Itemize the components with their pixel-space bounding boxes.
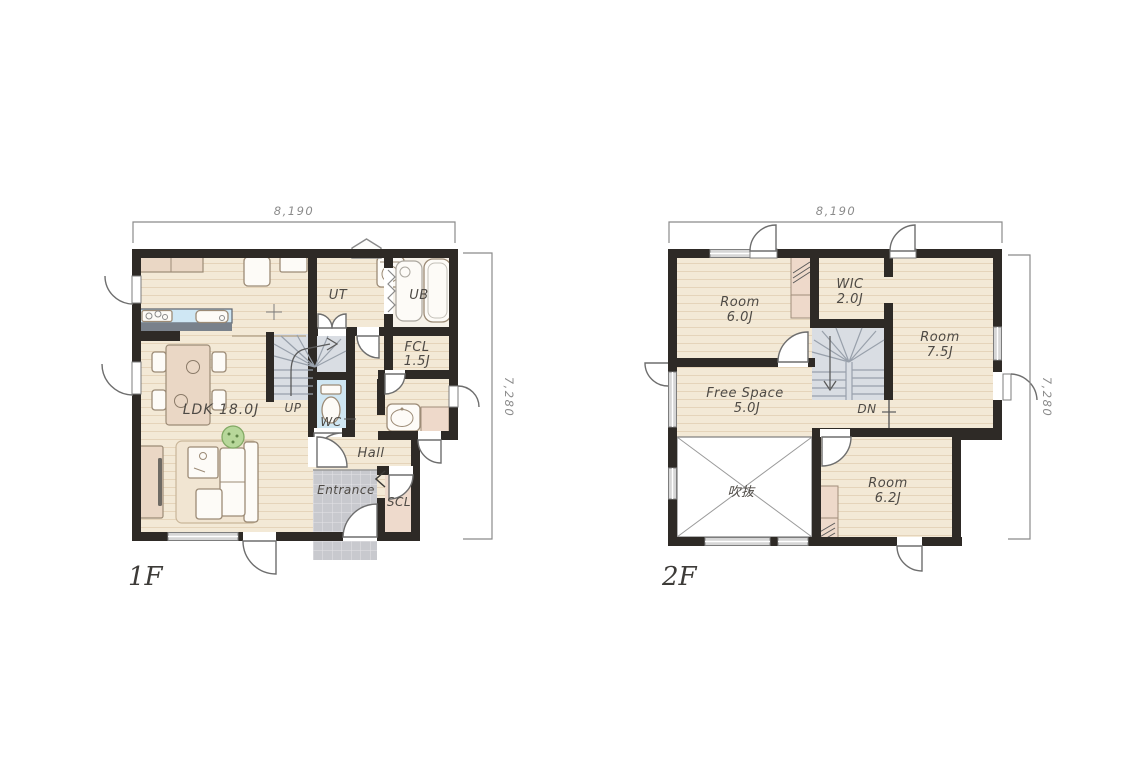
dim-width-2f: 8,190 <box>816 204 856 218</box>
refrigerator <box>244 257 270 286</box>
balcony-door-arc <box>1011 374 1037 400</box>
coffee-table <box>188 447 218 478</box>
casement-window <box>890 225 915 251</box>
free-space-size: 5.0J <box>734 401 761 416</box>
closet-room-6-0 <box>791 256 812 318</box>
kitchen-counter <box>139 309 232 331</box>
shelf <box>280 257 307 272</box>
casement-window-arc <box>105 276 133 304</box>
ut-label: UT <box>329 288 348 303</box>
casement-window <box>750 225 776 251</box>
floor-plan-1f: LDK 18.0J UT UB FCL 1.5J WC UP Hall Entr… <box>102 204 516 592</box>
room-6-2-terrace-door <box>897 546 922 571</box>
void-label: 吹抜 <box>727 485 756 500</box>
room-6-0-label: Room <box>720 295 760 310</box>
dim-height-1f: 7,280 <box>502 377 516 417</box>
fcl-label: FCL <box>404 340 429 355</box>
floor-label-1f: 1F <box>128 562 164 592</box>
room-6-2-size: 6.2J <box>875 491 902 506</box>
floor-plan-page: LDK 18.0J UT UB FCL 1.5J WC UP Hall Entr… <box>0 0 1142 776</box>
chair <box>212 352 226 372</box>
room-6-0-size: 6.0J <box>727 310 754 325</box>
hall-label: Hall <box>358 446 385 461</box>
plant <box>222 426 244 448</box>
casement-window-arc <box>102 364 133 395</box>
tv <box>158 458 162 506</box>
floor-label-2f: 2F <box>661 562 698 592</box>
free-space-label: Free Space <box>706 386 784 401</box>
dim-width-1f: 8,190 <box>274 204 314 218</box>
ub-label: UB <box>409 288 428 303</box>
washroom-cabinet <box>421 407 449 432</box>
terrace-door <box>243 541 276 574</box>
fcl-size-label: 1.5J <box>404 354 431 369</box>
dim-height-2f: 7,280 <box>1040 377 1054 417</box>
room-7-5-size: 7.5J <box>927 345 954 360</box>
sofa-chaise <box>196 489 222 519</box>
ldk-label: LDK 18.0J <box>183 402 260 418</box>
scl-label: SCL <box>387 495 411 509</box>
chair <box>152 390 166 410</box>
porch-tile <box>313 541 377 560</box>
washbasin <box>387 404 420 431</box>
chair <box>152 352 166 372</box>
sofa-back <box>244 442 258 522</box>
staircase-floor-2f <box>812 327 884 400</box>
wic-size: 2.0J <box>837 292 864 307</box>
casement-window-arc <box>645 363 668 386</box>
entrance-label: Entrance <box>317 483 375 497</box>
floor-plan-canvas: LDK 18.0J UT UB FCL 1.5J WC UP Hall Entr… <box>0 0 1142 776</box>
room-6-2-label: Room <box>868 476 908 491</box>
wic-label: WIC <box>836 277 864 292</box>
room-7-5-label: Room <box>920 330 960 345</box>
dn-label: DN <box>857 402 876 416</box>
up-label: UP <box>284 401 301 415</box>
floor-plan-2f: Room 6.0J WIC 2.0J Room 7.5J Free Space … <box>645 204 1054 592</box>
wc-label: WC <box>320 415 341 429</box>
service-door <box>418 440 441 463</box>
casement-window-arc <box>458 386 479 407</box>
